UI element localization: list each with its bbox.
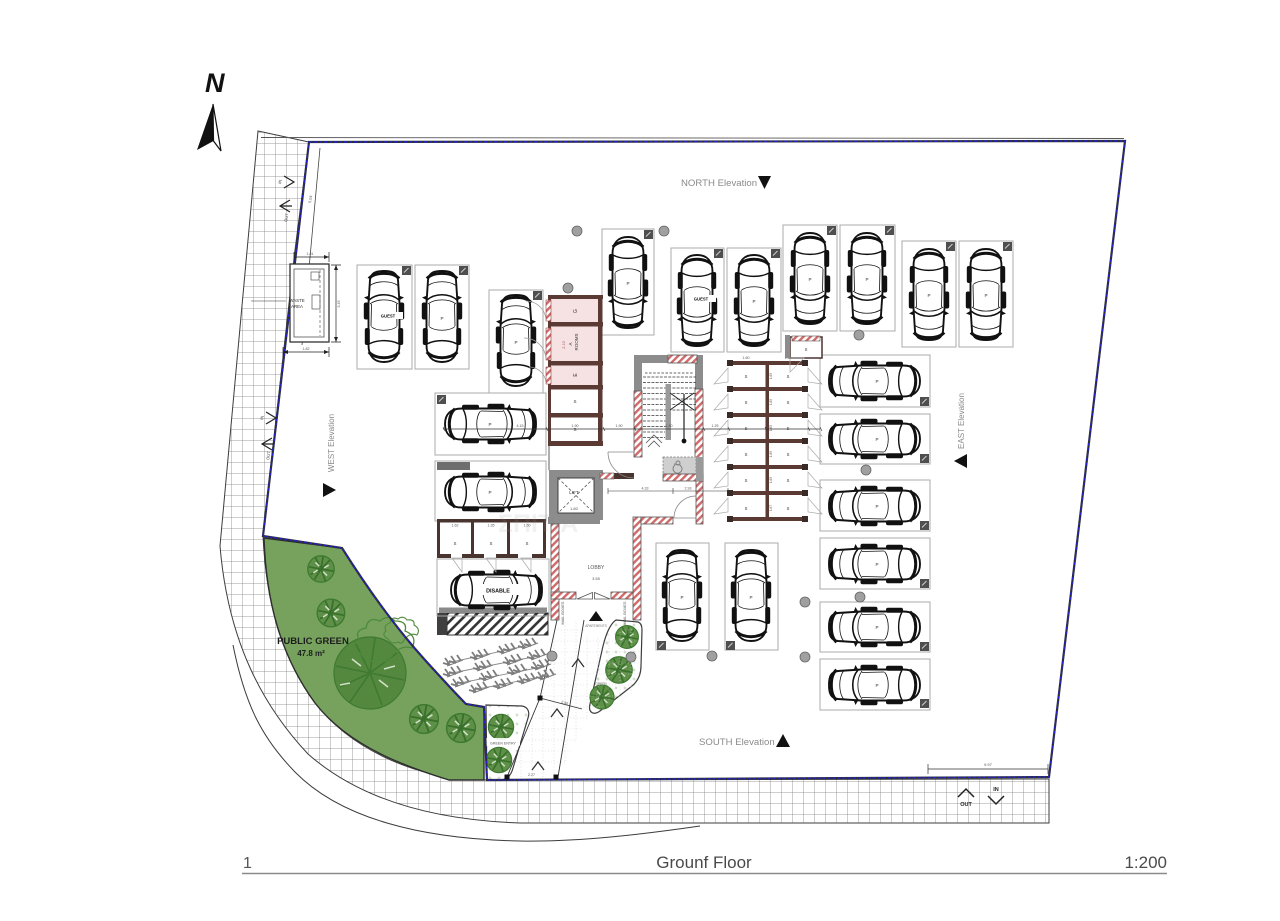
- svg-text:NORTH Elevation: NORTH Elevation: [681, 178, 757, 189]
- svg-text:S: S: [745, 426, 748, 431]
- svg-text:LIFT: LIFT: [569, 490, 579, 495]
- svg-text:APARTMENTS: APARTMENTS: [585, 624, 607, 628]
- svg-text:P: P: [875, 379, 878, 384]
- svg-text:1.25: 1.25: [712, 424, 719, 428]
- svg-text:1.60: 1.60: [743, 356, 750, 360]
- svg-text:P: P: [984, 293, 987, 298]
- svg-text:1.65: 1.65: [769, 477, 773, 483]
- svg-text:S: S: [526, 541, 529, 546]
- svg-text:S: S: [745, 506, 748, 511]
- svg-text:9.97: 9.97: [984, 762, 993, 767]
- svg-text:P: P: [749, 595, 752, 600]
- svg-text:1.65: 1.65: [769, 373, 773, 379]
- svg-text:P: P: [680, 595, 683, 600]
- svg-text:P: P: [875, 504, 878, 509]
- svg-text:P: P: [875, 437, 878, 442]
- svg-text:LOBBY: LOBBY: [588, 565, 605, 571]
- svg-text:S: S: [745, 374, 748, 379]
- svg-text:S: S: [787, 426, 790, 431]
- svg-text:WASTE: WASTE: [289, 298, 305, 303]
- svg-text:GUEST: GUEST: [694, 297, 709, 302]
- svg-text:P: P: [875, 562, 878, 567]
- svg-text:AREA: AREA: [291, 304, 303, 309]
- svg-text:1:200: 1:200: [1124, 853, 1167, 872]
- svg-text:S: S: [745, 452, 748, 457]
- svg-text:1.65: 1.65: [769, 451, 773, 457]
- svg-text:S: S: [745, 400, 748, 405]
- svg-text:P: P: [488, 490, 491, 495]
- svg-text:1.62: 1.62: [452, 524, 459, 528]
- svg-text:P: P: [626, 281, 629, 286]
- svg-text:G: G: [573, 309, 579, 313]
- svg-text:P: P: [752, 299, 755, 304]
- svg-text:A: A: [568, 342, 573, 345]
- svg-text:DISABLE: DISABLE: [486, 589, 510, 595]
- svg-text:S: S: [787, 452, 790, 457]
- svg-text:2.93: 2.93: [685, 487, 692, 491]
- svg-text:Grounf Floor: Grounf Floor: [656, 853, 752, 872]
- svg-text:S: S: [805, 347, 808, 352]
- svg-text:GREEN ENTRY: GREEN ENTRY: [490, 742, 516, 746]
- svg-text:P: P: [927, 293, 930, 298]
- svg-text:1.80: 1.80: [666, 424, 673, 428]
- svg-text:P: P: [875, 683, 878, 688]
- svg-text:MAIL BOXES: MAIL BOXES: [623, 601, 627, 624]
- svg-text:1.67: 1.67: [769, 505, 773, 511]
- svg-text:S: S: [787, 374, 790, 379]
- svg-text:S: S: [787, 506, 790, 511]
- svg-text:47.8 m²: 47.8 m²: [297, 649, 325, 658]
- svg-text:P: P: [865, 277, 868, 282]
- svg-text:1: 1: [243, 855, 252, 872]
- svg-text:1.61: 1.61: [307, 252, 314, 256]
- svg-text:1.35: 1.35: [488, 524, 495, 528]
- svg-text:P: P: [808, 277, 811, 282]
- svg-text:PUBLIC GREEN: PUBLIC GREEN: [277, 636, 349, 647]
- svg-text:EAST Elevation: EAST Elevation: [957, 393, 966, 449]
- svg-text:4.15: 4.15: [517, 424, 524, 428]
- svg-text:IN: IN: [993, 787, 999, 793]
- svg-text:S: S: [787, 400, 790, 405]
- svg-text:N: N: [205, 68, 225, 98]
- svg-text:3.45: 3.45: [337, 301, 341, 308]
- svg-text:P: P: [875, 625, 878, 630]
- svg-text:3.55: 3.55: [592, 576, 601, 581]
- svg-text:1.65: 1.65: [769, 425, 773, 431]
- svg-text:GUEST: GUEST: [381, 314, 396, 319]
- svg-text:P: P: [440, 316, 443, 321]
- svg-text:MAIL BOXES: MAIL BOXES: [561, 601, 565, 624]
- svg-text:P: P: [514, 340, 517, 345]
- svg-text:S: S: [573, 399, 576, 404]
- svg-text:1.82: 1.82: [303, 347, 310, 351]
- svg-text:S: S: [490, 541, 493, 546]
- svg-text:2.10: 2.10: [562, 341, 566, 348]
- svg-text:P: P: [488, 422, 491, 427]
- svg-text:ΣΠΙΤΙΑ: ΣΠΙΤΙΑ: [498, 510, 578, 538]
- svg-text:ROOMS: ROOMS: [574, 333, 579, 350]
- svg-text:S: S: [787, 478, 790, 483]
- svg-text:4.33: 4.33: [642, 487, 649, 491]
- svg-text:SOUTH Elevation: SOUTH Elevation: [699, 737, 775, 748]
- svg-text:1.65: 1.65: [769, 399, 773, 405]
- svg-text:WEST Elevation: WEST Elevation: [327, 414, 336, 472]
- svg-text:OUT: OUT: [960, 802, 972, 808]
- svg-text:1.90: 1.90: [572, 424, 579, 428]
- svg-text:2.27: 2.27: [528, 773, 535, 777]
- svg-text:S: S: [745, 478, 748, 483]
- svg-text:GREEN: GREEN: [595, 682, 607, 686]
- svg-text:1.90: 1.90: [616, 424, 623, 428]
- svg-text:S: S: [454, 541, 457, 546]
